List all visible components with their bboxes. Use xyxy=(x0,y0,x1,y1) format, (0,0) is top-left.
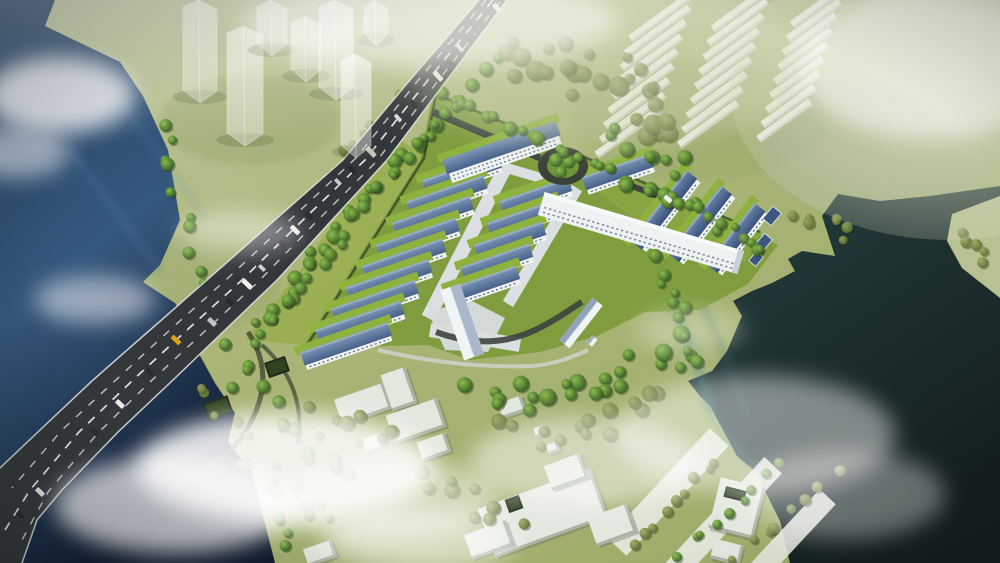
aerial-render xyxy=(0,0,1000,563)
vignette xyxy=(0,0,1000,563)
aerial-render-stage xyxy=(0,0,1000,563)
